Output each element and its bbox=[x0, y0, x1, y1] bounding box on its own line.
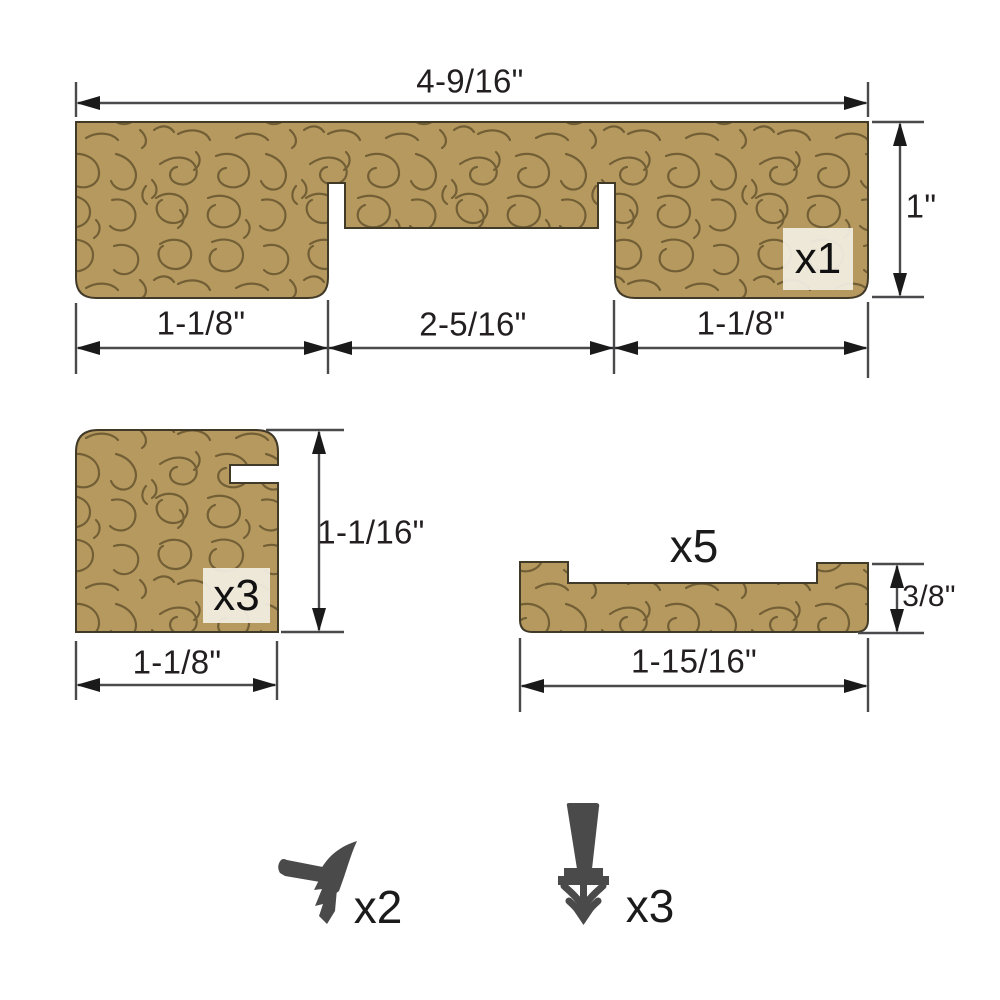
stop-count-label: x5 bbox=[670, 523, 719, 569]
header-bottom-left-label: 1-1/8" bbox=[157, 307, 246, 340]
jamb-header-profile bbox=[76, 122, 868, 298]
header-count-badge: x1 bbox=[783, 228, 853, 290]
profile-diagram: x1 x3 4-9/16" 1" 1-1/8" 2-5/16" 1-1/8" 1… bbox=[0, 0, 1000, 1000]
corner-count-badge: x3 bbox=[203, 568, 270, 623]
barb-seal-icon bbox=[558, 803, 609, 925]
header-height-label: 1" bbox=[906, 190, 937, 223]
corner-width-label: 1-1/8" bbox=[133, 646, 222, 679]
barb-seal-count-label: x3 bbox=[626, 883, 675, 929]
header-bottom-middle-label: 2-5/16" bbox=[419, 308, 526, 341]
diagram-drawing bbox=[0, 0, 1000, 1000]
corner-seal-icon bbox=[278, 841, 357, 924]
stop-moulding-profile bbox=[520, 562, 868, 632]
corner-seal-count-label: x2 bbox=[354, 884, 403, 930]
corner-height-label: 1-1/16" bbox=[317, 516, 424, 549]
header-bottom-right-label: 1-1/8" bbox=[697, 307, 786, 340]
stop-height-label: 3/8" bbox=[902, 582, 956, 612]
stop-width-label: 1-15/16" bbox=[631, 645, 757, 678]
top-width-label: 4-9/16" bbox=[416, 65, 523, 98]
